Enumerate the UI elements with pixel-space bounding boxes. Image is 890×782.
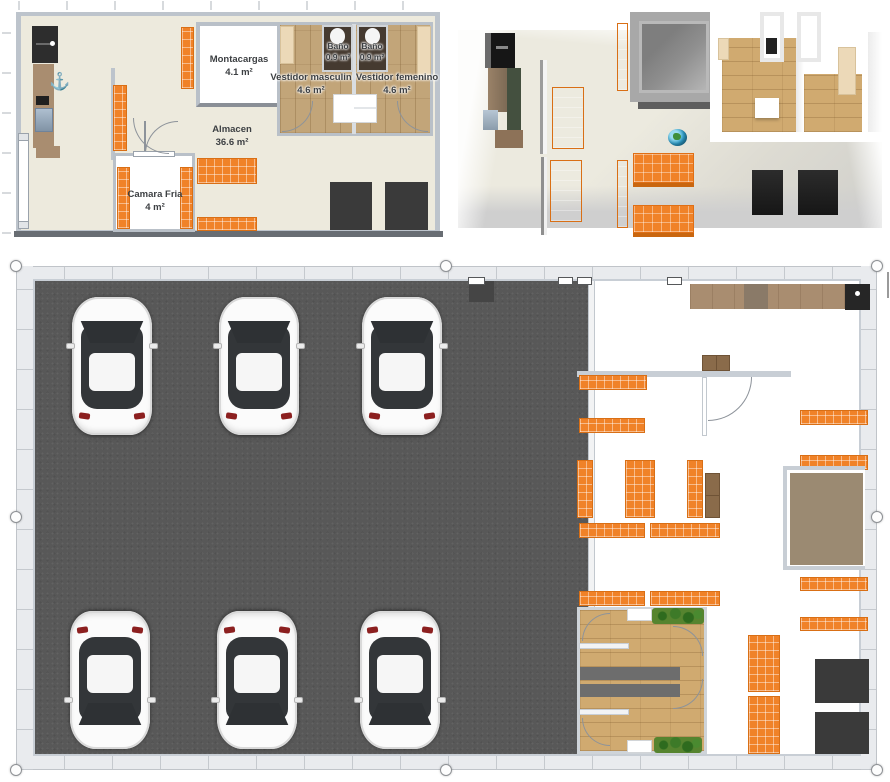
window-marker xyxy=(577,277,592,285)
room-label-montacargas: Montacargas 4.1 m² xyxy=(210,53,269,79)
selection-handle-s[interactable] xyxy=(440,764,452,776)
window-sill xyxy=(18,133,29,141)
ruler-ticks-left xyxy=(2,12,11,234)
dark-appliance-3d xyxy=(798,170,838,215)
appliance-knob xyxy=(855,291,860,296)
car-roof xyxy=(236,353,282,391)
elevator-door-3d xyxy=(638,102,710,109)
selection-handle-n[interactable] xyxy=(440,260,452,272)
shelf-unit xyxy=(800,617,868,631)
car-roof xyxy=(379,353,425,391)
bench xyxy=(627,608,652,621)
selection-handle-se[interactable] xyxy=(871,764,883,776)
dark-appliance xyxy=(815,659,869,703)
wall-3d xyxy=(541,157,547,235)
shelf-unit xyxy=(579,375,647,390)
shelf-unit xyxy=(579,591,645,606)
corner-appliance xyxy=(845,284,870,310)
bench-3d xyxy=(755,98,779,118)
car-top-view xyxy=(217,611,297,749)
toilet-3d xyxy=(766,38,777,54)
ruler-ticks-top xyxy=(18,1,438,10)
window xyxy=(18,133,29,229)
car-mirror xyxy=(147,697,156,703)
shelf-cabinet-3d xyxy=(550,160,582,222)
room-label-vestidor-femenino: Vestidor femenino 4.6 m² xyxy=(356,71,438,97)
room-name: Montacargas xyxy=(210,53,269,66)
bench xyxy=(627,740,652,753)
room-name: Vestidor femenino xyxy=(356,71,438,84)
room-area: 4.1 m² xyxy=(210,66,269,79)
window-sill xyxy=(18,221,29,229)
room-area: 4.6 m² xyxy=(356,84,438,97)
storage-boxes xyxy=(702,355,730,371)
refrigerator-3d xyxy=(485,33,515,68)
dark-appliance-3d xyxy=(752,170,783,215)
locker-3d xyxy=(718,38,729,60)
selection-handle-e[interactable] xyxy=(871,511,883,523)
room-name: Vestidor masculin xyxy=(270,71,351,84)
shelf-unit xyxy=(197,158,257,184)
bench-line xyxy=(354,107,376,109)
locker-3d xyxy=(838,47,856,95)
stove xyxy=(744,284,768,309)
room-label-bano-1: Baño 0.9 m² xyxy=(326,41,351,63)
shelf-unit xyxy=(197,217,257,231)
locker-bench xyxy=(580,667,680,680)
shelf-unit xyxy=(800,410,868,425)
dark-appliance xyxy=(330,182,372,230)
storage-boxes xyxy=(705,473,720,518)
shelf-unit xyxy=(650,591,720,606)
shelf-tall-3d xyxy=(617,23,628,91)
shelf-unit xyxy=(577,460,593,518)
room-label-almacen: Almacen 36.6 m² xyxy=(212,123,252,149)
plant xyxy=(654,737,702,753)
shelf-unit xyxy=(579,523,645,538)
tall-cabinet-3d xyxy=(488,68,507,112)
car-roof xyxy=(234,655,280,693)
bano-3d xyxy=(760,12,784,62)
wall-3d xyxy=(540,60,547,154)
scrollbar-fragment[interactable] xyxy=(887,272,889,298)
shelf-unit xyxy=(687,460,703,518)
room-name: Baño xyxy=(326,41,351,52)
room-label-bano-2: Baño 0.9 m² xyxy=(360,41,385,63)
room-area: 36.6 m² xyxy=(212,136,252,149)
kitchen-counter-end xyxy=(36,146,60,158)
locker-bench xyxy=(580,684,680,697)
refrigerator-knob xyxy=(50,41,55,46)
globe-continent xyxy=(673,133,681,140)
work-table xyxy=(790,473,863,565)
shelf-unit xyxy=(113,85,127,151)
car-mirror xyxy=(296,343,305,349)
locker xyxy=(280,26,294,64)
car-roof xyxy=(87,655,133,693)
floorplan-large-image[interactable] xyxy=(16,266,877,770)
window-marker xyxy=(558,277,573,285)
car-roof xyxy=(377,655,423,693)
shelf-unit xyxy=(800,577,868,591)
room-label-vestidor-masculino: Vestidor masculin 4.6 m² xyxy=(270,71,351,97)
anchor-icon: ⚓ xyxy=(49,70,69,94)
refrigerator-handle-3d xyxy=(496,46,508,49)
room-name: Almacen xyxy=(212,123,252,136)
selection-handle-nw[interactable] xyxy=(10,260,22,272)
orange-table-3d xyxy=(633,205,694,233)
car-mirror xyxy=(64,697,73,703)
shelf-unit xyxy=(650,523,720,538)
shelf-cabinet-3d xyxy=(552,87,584,149)
car-mirror xyxy=(294,697,303,703)
car-mirror xyxy=(356,343,365,349)
shelf-unit xyxy=(579,418,645,433)
car-top-view xyxy=(362,297,442,435)
room-label-camara-fria: Camara Fria 4 m² xyxy=(128,188,183,214)
plan-content xyxy=(33,279,861,756)
wall-3d xyxy=(868,32,882,132)
counter-3d xyxy=(495,130,523,148)
shelf-unit xyxy=(181,27,194,89)
room-area: 0.9 m² xyxy=(326,52,351,63)
car-mirror xyxy=(354,697,363,703)
plan-bottom-wall xyxy=(14,231,443,237)
dark-appliance xyxy=(385,182,428,230)
room-name: Baño xyxy=(360,41,385,52)
car-top-view xyxy=(72,297,152,435)
car-mirror xyxy=(437,697,446,703)
car-mirror xyxy=(149,343,158,349)
car-top-view xyxy=(219,297,299,435)
wall-stub xyxy=(579,709,629,715)
car-mirror xyxy=(211,697,220,703)
cooktop xyxy=(36,96,49,105)
dark-appliance xyxy=(815,712,869,754)
appliance-3d xyxy=(483,110,498,130)
window-marker xyxy=(468,277,485,285)
elevator-interior-3d xyxy=(642,24,706,90)
wall-stub xyxy=(579,643,629,649)
shelf-unit xyxy=(748,696,780,754)
door-arc xyxy=(708,377,752,421)
car-mirror xyxy=(213,343,222,349)
car-top-view xyxy=(70,611,150,749)
selection-handle-sw[interactable] xyxy=(10,764,22,776)
bano-3d xyxy=(797,12,821,62)
car-mirror xyxy=(439,343,448,349)
shelf-tall-3d xyxy=(617,160,628,228)
selection-handle-w[interactable] xyxy=(10,511,22,523)
room-area: 4 m² xyxy=(128,201,183,214)
car-roof xyxy=(89,353,135,391)
plant xyxy=(652,608,704,624)
shelf-unit xyxy=(748,635,780,692)
shelf-unit xyxy=(625,460,655,518)
tall-cabinet-dark-3d xyxy=(507,68,521,130)
car-top-view xyxy=(360,611,440,749)
floorplan-3d-image[interactable] xyxy=(452,2,890,238)
floorplan-2d-image[interactable]: ⚓ Montacargas 4.1 m² Baño 0.9 m² Baño 0.… xyxy=(0,0,446,242)
room-area: 4.6 m² xyxy=(270,84,351,97)
selection-handle-ne[interactable] xyxy=(871,260,883,272)
room-name: Camara Fria xyxy=(128,188,183,201)
orange-table-3d xyxy=(633,153,694,183)
sink-appliance xyxy=(35,108,53,132)
wall-stub xyxy=(702,377,707,436)
room-area: 0.9 m² xyxy=(360,52,385,63)
car-mirror xyxy=(66,343,75,349)
window-marker xyxy=(667,277,682,285)
